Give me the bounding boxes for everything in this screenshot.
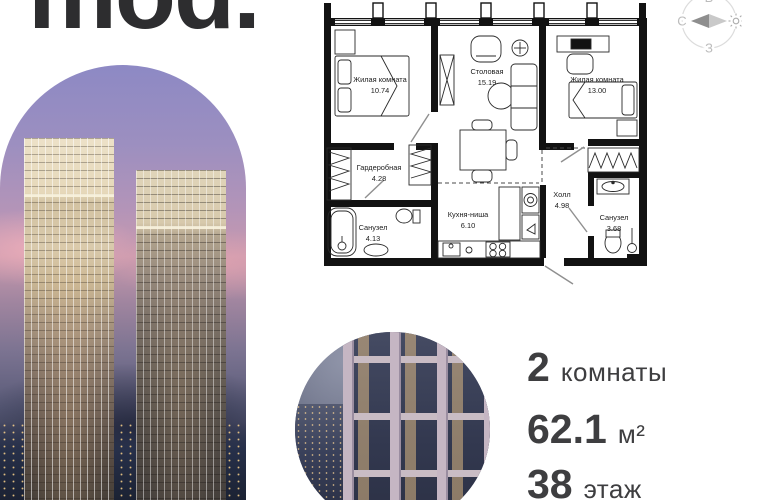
room-area: 15.19	[478, 78, 497, 87]
compass-east-label: В	[705, 0, 714, 5]
floor-value: 38	[527, 464, 573, 500]
room-area: 6.10	[461, 221, 475, 230]
compass-needle-west	[691, 14, 709, 28]
facade-photo	[295, 332, 490, 500]
tower-right	[136, 170, 226, 500]
room-area: 3.68	[607, 224, 621, 233]
room-label: Столовая	[470, 67, 503, 76]
tower-cornice	[24, 194, 114, 197]
sun-icon	[728, 13, 742, 29]
facade-windows	[343, 332, 490, 500]
floor-plan: Жилая комната 10.74 Столовая 15.19 Жилая…	[321, 0, 651, 288]
room-area: 4.28	[372, 174, 386, 183]
room-area: 4.13	[366, 234, 380, 243]
area-row: 62.1 м²	[527, 409, 645, 450]
rooms-count-value: 2	[527, 347, 550, 388]
room-label: Жилая комната	[570, 75, 624, 84]
compass-west-label: З	[705, 41, 713, 56]
building-photo	[0, 65, 246, 500]
area-unit: м²	[618, 421, 646, 447]
rooms-count-label: комнаты	[561, 359, 667, 385]
area-value: 62.1	[527, 409, 607, 450]
room-area: 10.74	[371, 86, 390, 95]
rooms-row: 2 комнаты	[527, 347, 667, 388]
room-area: 13.00	[588, 86, 607, 95]
compass-needle-east	[709, 14, 727, 28]
apartment-card: mod.	[0, 0, 770, 500]
tower-left	[24, 138, 114, 500]
room-label: Санузел	[600, 213, 629, 222]
brand-logo: mod.	[28, 0, 259, 44]
room-label: Кухня-ниша	[448, 210, 489, 219]
floor-label: этаж	[584, 476, 642, 500]
compass: С З В	[676, 0, 742, 56]
compass-north-label: С	[677, 14, 686, 29]
floor-row: 38 этаж	[527, 464, 642, 500]
room-label: Гардеробная	[357, 163, 402, 172]
room-label: Жилая комната	[353, 75, 407, 84]
tower-cornice	[136, 226, 226, 229]
room-area: 4.98	[555, 201, 569, 210]
facade-ticks	[373, 3, 597, 18]
room-label: Санузел	[359, 223, 388, 232]
room-label: Холл	[553, 190, 570, 199]
